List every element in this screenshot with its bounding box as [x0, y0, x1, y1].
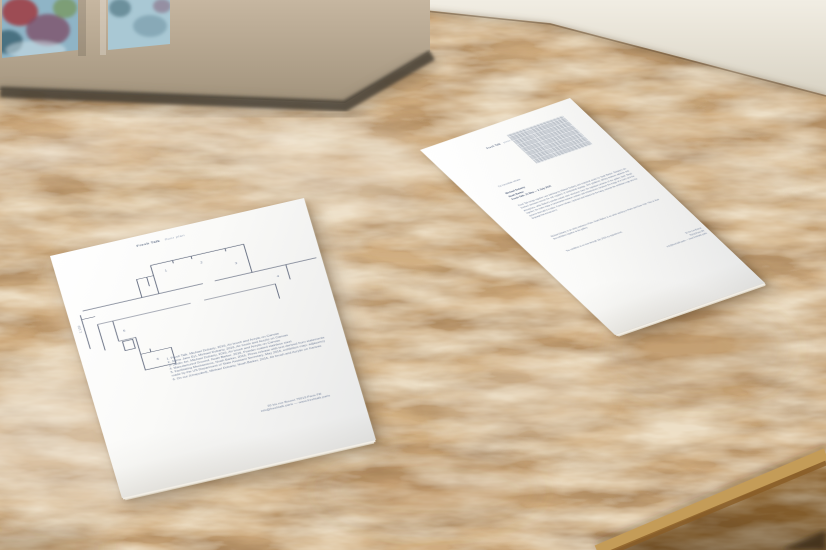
- plan-room-number: 4: [276, 275, 279, 279]
- photo-scene: Fresh Talk floor plan 1 2 3 4 5 6: [0, 0, 826, 550]
- plan-room-number: 6: [156, 357, 159, 361]
- plan-room-number: 2: [200, 261, 203, 265]
- plan-room-number: 3: [234, 261, 237, 265]
- plan-room-number: 1: [164, 269, 167, 273]
- window: [0, 0, 436, 112]
- plan-room-number: 5: [123, 329, 126, 333]
- stained-glass-right-pane: [108, 0, 171, 50]
- stained-glass-left-pane: [0, 0, 78, 59]
